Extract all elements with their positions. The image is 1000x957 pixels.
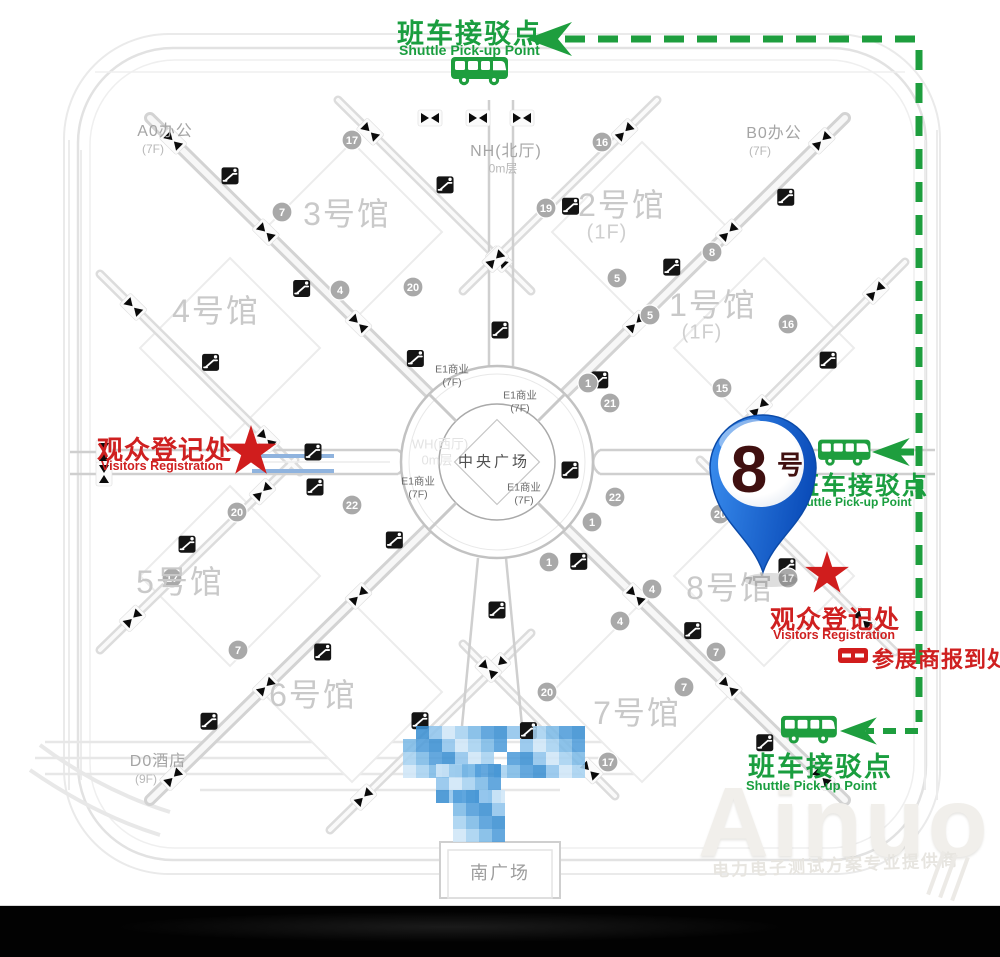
mosaic-cell bbox=[455, 726, 468, 739]
mosaic-cell bbox=[453, 829, 466, 842]
mosaic-cell bbox=[449, 764, 462, 777]
blurred-censored-area bbox=[0, 0, 1000, 957]
mosaic-cell bbox=[507, 726, 520, 739]
mosaic-cell bbox=[572, 739, 585, 752]
mosaic-cell bbox=[466, 803, 479, 816]
mosaic-cell bbox=[429, 726, 442, 739]
mosaic-cell bbox=[403, 739, 416, 752]
mosaic-cell bbox=[468, 726, 481, 739]
location-pin-hall8: 8 号 bbox=[678, 408, 848, 608]
mosaic-cell bbox=[403, 752, 416, 765]
mosaic-cell bbox=[520, 765, 533, 778]
mosaic-cell bbox=[436, 764, 449, 777]
mosaic-cell bbox=[546, 752, 559, 765]
mosaic-cell bbox=[462, 777, 475, 790]
mosaic-cell bbox=[479, 829, 492, 842]
mosaic-cell bbox=[462, 764, 475, 777]
mosaic-cell bbox=[520, 752, 533, 765]
mosaic-cell bbox=[492, 803, 505, 816]
mosaic-cell bbox=[466, 790, 479, 803]
exhibition-center-map: 7204171619855161512122120221772017447711… bbox=[0, 0, 1000, 957]
pin-shadow bbox=[744, 573, 798, 587]
mosaic-cell bbox=[481, 726, 494, 739]
mosaic-cell bbox=[453, 790, 466, 803]
mosaic-cell bbox=[449, 777, 462, 790]
bottom-black-bar bbox=[0, 905, 1000, 957]
mosaic-cell bbox=[520, 739, 533, 752]
mosaic-cell bbox=[546, 739, 559, 752]
mosaic-cell bbox=[468, 739, 481, 752]
mosaic-cell bbox=[559, 726, 572, 739]
mosaic-cell bbox=[507, 765, 520, 778]
mosaic-cell bbox=[492, 829, 505, 842]
pin-number: 8 bbox=[731, 432, 768, 506]
mosaic-cell bbox=[436, 790, 449, 803]
mosaic-cell bbox=[453, 816, 466, 829]
mosaic-cell bbox=[479, 790, 492, 803]
mosaic-cell bbox=[492, 790, 505, 803]
mosaic-cell bbox=[442, 726, 455, 739]
mosaic-cell bbox=[416, 752, 429, 765]
mosaic-cell bbox=[559, 752, 572, 765]
black-bar-swoosh bbox=[120, 912, 780, 942]
pin-suffix: 号 bbox=[777, 450, 803, 480]
mosaic-cell bbox=[572, 726, 585, 739]
mosaic-cell bbox=[494, 739, 507, 752]
mosaic-cell bbox=[488, 777, 501, 790]
mosaic-cell bbox=[442, 739, 455, 752]
mosaic-cell bbox=[453, 803, 466, 816]
mosaic-cell bbox=[466, 829, 479, 842]
mosaic-cell bbox=[429, 739, 442, 752]
mosaic-cell bbox=[475, 764, 488, 777]
mosaic-cell bbox=[559, 765, 572, 778]
mosaic-cell bbox=[507, 752, 520, 765]
mosaic-cell bbox=[481, 739, 494, 752]
mosaic-cell bbox=[403, 765, 416, 778]
mosaic-cell bbox=[455, 739, 468, 752]
mosaic-cell bbox=[546, 726, 559, 739]
mosaic-cell bbox=[533, 752, 546, 765]
mosaic-cell bbox=[572, 765, 585, 778]
mosaic-cell bbox=[546, 765, 559, 778]
mosaic-cell bbox=[492, 816, 505, 829]
mosaic-cell bbox=[436, 777, 449, 790]
mosaic-cell bbox=[416, 765, 429, 778]
mosaic-cell bbox=[466, 816, 479, 829]
mosaic-cell bbox=[416, 739, 429, 752]
mosaic-cell bbox=[559, 739, 572, 752]
mosaic-cell bbox=[479, 803, 492, 816]
mosaic-cell bbox=[479, 816, 492, 829]
mosaic-cell bbox=[416, 726, 429, 739]
mosaic-cell bbox=[533, 765, 546, 778]
mosaic-cell bbox=[494, 726, 507, 739]
mosaic-cell bbox=[533, 739, 546, 752]
mosaic-cell bbox=[572, 752, 585, 765]
mosaic-cell bbox=[475, 777, 488, 790]
mosaic-cell bbox=[488, 764, 501, 777]
mosaic-cell bbox=[533, 726, 546, 739]
